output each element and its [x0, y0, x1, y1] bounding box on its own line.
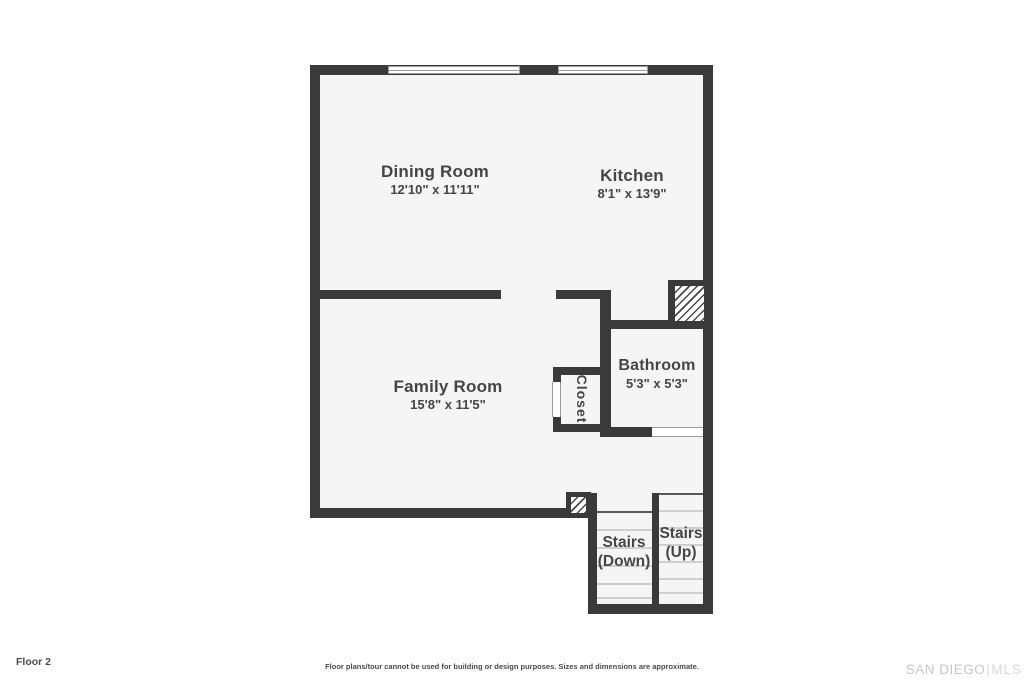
stair-tread	[659, 592, 703, 594]
room-label-closet: Closet	[574, 375, 590, 424]
wall-family-bottom	[310, 508, 573, 518]
wall-right	[703, 65, 713, 614]
closet-door	[552, 382, 561, 417]
wall-stairwell-bottom	[588, 604, 713, 614]
stairs-up-edge-line	[659, 493, 703, 495]
bathroom-door	[652, 427, 703, 437]
room-label-dining-room: Dining Room 12'10" x 11'11"	[381, 162, 489, 197]
kitchen-name: Kitchen	[597, 166, 666, 186]
bathroom-dims: 5'3" x 5'3"	[618, 376, 695, 391]
dining-room-name: Dining Room	[381, 162, 489, 182]
wall-closet-left-lower	[553, 415, 561, 432]
brand-secondary: MLS	[991, 662, 1022, 677]
room-label-family-room: Family Room 15'8" x 11'5"	[394, 377, 503, 412]
wall-vertical-core	[600, 290, 611, 437]
stairs-up-name: Stairs	[659, 524, 702, 543]
stairs-down-qualifier: (Down)	[598, 552, 651, 571]
wall-dining-family-divider	[310, 290, 501, 299]
stair-post-hatch-fill	[571, 497, 586, 513]
floor-number-label: Floor 2	[16, 656, 51, 668]
bathroom-name: Bathroom	[618, 356, 695, 376]
room-label-bathroom: Bathroom 5'3" x 5'3"	[618, 356, 695, 391]
room-label-stairs-up: Stairs (Up)	[659, 524, 702, 562]
floor-plan-page: Dining Room 12'10" x 11'11" Kitchen 8'1"…	[0, 0, 1024, 683]
stairs-down-name: Stairs	[598, 533, 651, 552]
disclaimer-text: Floor plans/tour cannot be used for buil…	[325, 662, 699, 671]
window-pane-line	[559, 70, 647, 71]
stair-tread	[597, 583, 652, 585]
family-room-dims: 15'8" x 11'5"	[394, 397, 503, 412]
stair-tread	[597, 529, 652, 531]
kitchen-dims: 8'1" x 13'9"	[597, 186, 666, 201]
wall-closet-bottom	[553, 424, 611, 432]
room-label-kitchen: Kitchen 8'1" x 13'9"	[597, 166, 666, 201]
window	[558, 66, 648, 74]
stairs-down-edge-line	[597, 511, 652, 513]
wall-stairs-left	[588, 493, 597, 614]
brand-divider: |	[986, 662, 990, 677]
stairs-up-qualifier: (Up)	[659, 543, 702, 562]
family-room-name: Family Room	[394, 377, 503, 397]
stair-tread	[597, 597, 652, 599]
wall-stairs-divider	[652, 493, 659, 614]
stair-tread	[659, 510, 703, 512]
stair-tread	[659, 578, 703, 580]
window	[388, 66, 520, 74]
room-label-stairs-down: Stairs (Down)	[598, 533, 651, 571]
sandiego-mls-logo: SAN DIEGO|MLS	[906, 662, 1022, 677]
dining-room-dims: 12'10" x 11'11"	[381, 182, 489, 197]
brand-primary: SAN DIEGO	[906, 662, 986, 677]
window-pane-line	[389, 70, 519, 71]
kitchen-shaft-hatch-fill	[675, 286, 704, 321]
